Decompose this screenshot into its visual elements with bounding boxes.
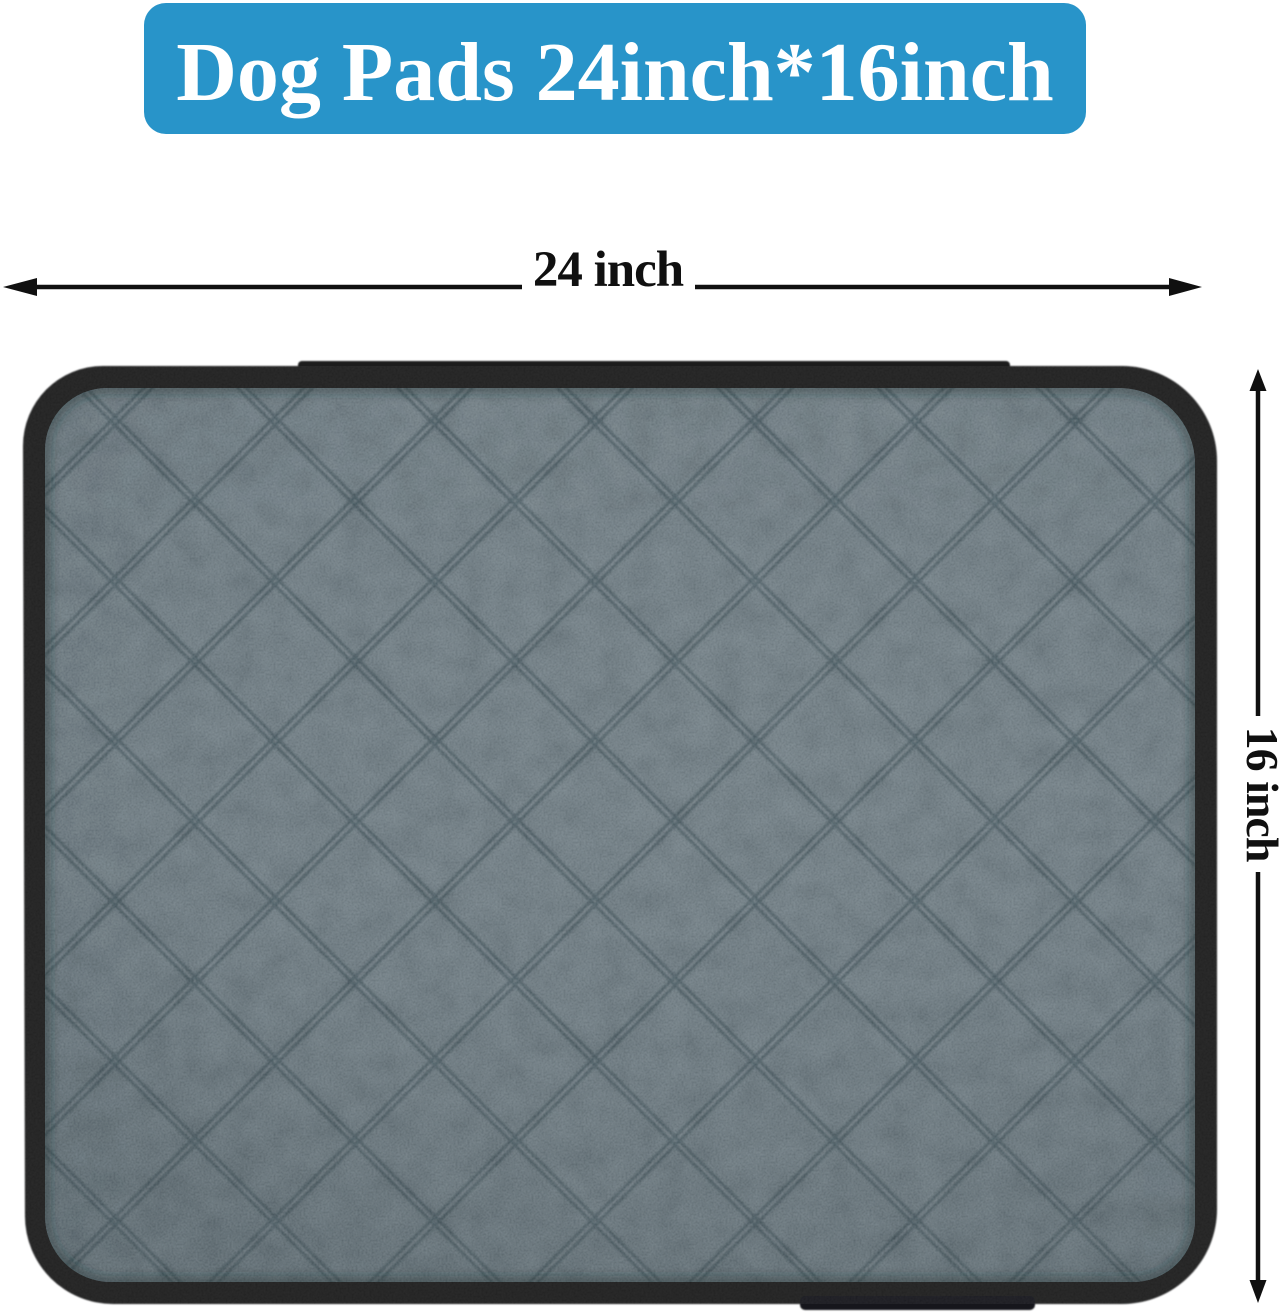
svg-text:16 inch: 16 inch [1237,727,1282,862]
svg-text:24 inch: 24 inch [533,242,684,298]
svg-text:Dog Pads 24inch*16inch: Dog Pads 24inch*16inch [176,26,1054,119]
